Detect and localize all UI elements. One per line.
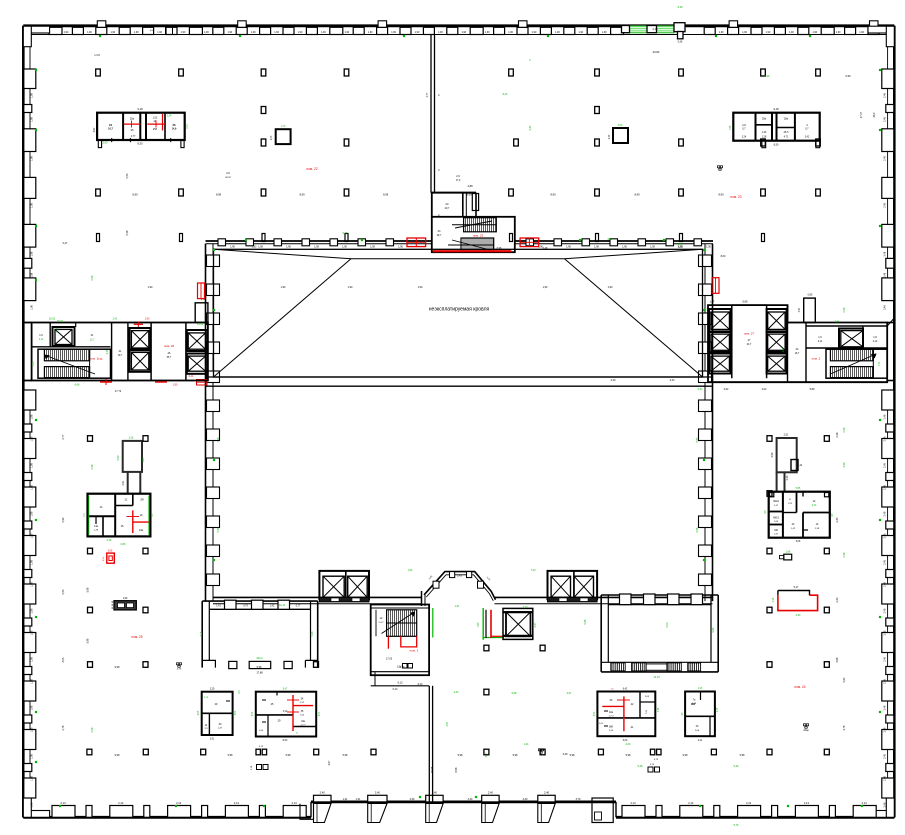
svg-text:7,33: 7,33 <box>98 358 103 361</box>
svg-text:2,5: 2,5 <box>238 690 241 694</box>
svg-text:6,89: 6,89 <box>743 301 748 304</box>
svg-text:пом. 24: пом. 24 <box>794 685 805 689</box>
svg-text:2,41: 2,41 <box>698 740 703 742</box>
svg-text:2,48: 2,48 <box>883 272 886 277</box>
svg-text:1,41: 1,41 <box>216 606 221 608</box>
svg-text:4,50: 4,50 <box>594 711 596 716</box>
svg-text:7,65: 7,65 <box>477 622 480 627</box>
svg-text:8,99: 8,99 <box>299 193 305 197</box>
svg-text:пом. 26: пом. 26 <box>164 344 175 348</box>
svg-text:3,33: 3,33 <box>670 379 675 382</box>
svg-text:2,11: 2,11 <box>818 341 823 343</box>
svg-text:5,98: 5,98 <box>115 666 120 669</box>
svg-text:1,70: 1,70 <box>281 125 286 128</box>
svg-text:2,40: 2,40 <box>320 791 326 795</box>
svg-text:1,90: 1,90 <box>859 31 864 34</box>
svg-text:2,92: 2,92 <box>62 517 65 522</box>
svg-text:5,98: 5,98 <box>683 754 688 757</box>
svg-text:6,89: 6,89 <box>121 543 126 546</box>
svg-text:2,48: 2,48 <box>883 414 886 419</box>
svg-text:2,48: 2,48 <box>883 679 886 684</box>
svg-text:5,86: 5,86 <box>696 527 699 532</box>
svg-text:36,0: 36,0 <box>873 112 876 117</box>
svg-text:1,98: 1,98 <box>30 436 33 441</box>
svg-text:7,20: 7,20 <box>531 569 536 572</box>
svg-text:2,11: 2,11 <box>39 339 44 341</box>
svg-text:5,53: 5,53 <box>126 173 129 178</box>
svg-text:3,79: 3,79 <box>576 798 581 801</box>
svg-text:1,90: 1,90 <box>391 31 396 34</box>
svg-text:1,98: 1,98 <box>30 272 33 277</box>
svg-text:2,48: 2,48 <box>883 485 886 490</box>
svg-text:5,98: 5,98 <box>87 587 90 592</box>
svg-text:1,90: 1,90 <box>742 31 747 34</box>
svg-text:2,53: 2,53 <box>62 589 65 594</box>
svg-text:2,40: 2,40 <box>375 791 381 795</box>
svg-text:1,90: 1,90 <box>157 31 162 34</box>
svg-text:2,48: 2,48 <box>883 156 886 161</box>
svg-text:7,20: 7,20 <box>523 606 528 609</box>
svg-text:3,40: 3,40 <box>468 798 473 801</box>
svg-text:0,27: 0,27 <box>63 242 68 245</box>
svg-text:2,41: 2,41 <box>113 318 118 321</box>
svg-text:9,18: 9,18 <box>773 107 779 111</box>
svg-text:19а: 19а <box>139 529 144 532</box>
svg-text:1,90: 1,90 <box>578 31 583 34</box>
svg-text:14,9: 14,9 <box>172 128 177 131</box>
svg-text:8,63: 8,63 <box>283 739 288 742</box>
svg-text:6,96: 6,96 <box>845 74 851 78</box>
svg-text:1,90: 1,90 <box>566 246 571 249</box>
svg-text:2,12: 2,12 <box>873 341 878 343</box>
svg-text:2,48: 2,48 <box>883 117 886 122</box>
svg-text:2,51: 2,51 <box>784 434 789 437</box>
svg-text:2×17: 2×17 <box>379 621 385 624</box>
svg-text:3,45: 3,45 <box>529 125 532 130</box>
svg-text:5,98: 5,98 <box>115 754 120 757</box>
svg-text:2,48: 2,48 <box>883 560 886 565</box>
svg-text:4,71: 4,71 <box>784 137 789 139</box>
svg-text:1,90: 1,90 <box>134 31 139 34</box>
svg-text:6,96: 6,96 <box>765 75 770 78</box>
svg-text:1,90: 1,90 <box>274 31 279 34</box>
svg-text:8,60: 8,60 <box>721 255 726 258</box>
svg-text:1,31: 1,31 <box>356 798 361 801</box>
svg-text:5,98: 5,98 <box>740 754 745 757</box>
svg-text:1,98: 1,98 <box>30 414 33 419</box>
svg-text:1,43: 1,43 <box>457 576 462 578</box>
svg-text:30,62: 30,62 <box>49 318 56 321</box>
svg-text:2,48: 2,48 <box>883 251 886 256</box>
svg-text:4,97: 4,97 <box>446 721 449 726</box>
svg-text:1,90: 1,90 <box>227 31 232 34</box>
svg-text:5,85: 5,85 <box>796 487 801 490</box>
svg-text:1,90: 1,90 <box>812 31 817 34</box>
svg-text:1,98: 1,98 <box>30 657 33 662</box>
svg-text:1,44: 1,44 <box>524 743 529 746</box>
svg-text:26: 26 <box>173 123 176 127</box>
svg-text:17,9: 17,9 <box>456 180 461 182</box>
svg-text:1,90: 1,90 <box>650 246 655 249</box>
svg-text:2,48: 2,48 <box>883 533 886 538</box>
svg-text:2,03: 2,03 <box>271 135 273 140</box>
svg-text:29а: 29а <box>762 118 767 121</box>
svg-text:38б: 38б <box>609 726 614 729</box>
svg-text:6,66: 6,66 <box>75 384 80 387</box>
svg-text:3,40: 3,40 <box>523 798 528 801</box>
svg-text:2,33: 2,33 <box>786 475 789 480</box>
svg-text:5,28: 5,28 <box>126 230 129 235</box>
svg-text:5,98: 5,98 <box>91 727 94 732</box>
svg-text:3,30: 3,30 <box>611 379 616 382</box>
svg-text:4,97: 4,97 <box>327 760 331 766</box>
svg-text:2,91: 2,91 <box>122 480 125 485</box>
svg-text:1,4 8: 1,4 8 <box>94 54 100 57</box>
svg-text:1,98: 1,98 <box>30 705 33 710</box>
svg-text:1,98: 1,98 <box>30 776 33 781</box>
svg-text:пом. 2: пом. 2 <box>812 357 821 361</box>
svg-text:5,48: 5,48 <box>638 765 643 768</box>
svg-text:1,90: 1,90 <box>145 318 150 321</box>
svg-text:0,28: 0,28 <box>107 540 112 542</box>
svg-text:2,48: 2,48 <box>883 754 886 759</box>
svg-text:1,98: 1,98 <box>30 582 33 587</box>
svg-text:5,47: 5,47 <box>794 586 799 589</box>
svg-text:2,48: 2,48 <box>883 463 886 468</box>
svg-text:1,98: 1,98 <box>30 608 33 613</box>
svg-text:4,97: 4,97 <box>567 692 572 695</box>
svg-text:4,88: 4,88 <box>467 184 473 188</box>
svg-text:0,38: 0,38 <box>678 42 683 44</box>
svg-text:5,60: 5,60 <box>623 740 628 742</box>
svg-text:2,13: 2,13 <box>118 801 124 805</box>
svg-text:3,98: 3,98 <box>843 462 846 467</box>
svg-text:1,90: 1,90 <box>344 31 349 34</box>
svg-text:8,99: 8,99 <box>718 193 724 197</box>
svg-text:1,6: 1,6 <box>39 334 43 337</box>
svg-text:1,77: 1,77 <box>426 92 429 97</box>
svg-text:18,7: 18,7 <box>795 353 800 355</box>
svg-text:2,24: 2,24 <box>167 116 172 118</box>
svg-text:неэксплатируемая кровля: неэксплатируемая кровля <box>429 307 490 313</box>
svg-text:8,99: 8,99 <box>216 193 222 197</box>
svg-text:1,98: 1,98 <box>30 202 33 207</box>
svg-text:12,03: 12,03 <box>653 676 660 679</box>
svg-text:1,90: 1,90 <box>706 246 711 249</box>
svg-text:19,7: 19,7 <box>118 355 123 357</box>
svg-text:1,90: 1,90 <box>461 31 466 34</box>
svg-text:6,42: 6,42 <box>623 689 628 691</box>
svg-text:4,52: 4,52 <box>724 388 729 391</box>
svg-text:3,42: 3,42 <box>805 137 810 139</box>
svg-text:1,47: 1,47 <box>710 301 715 304</box>
svg-text:3,24: 3,24 <box>742 137 747 139</box>
svg-text:1,99: 1,99 <box>123 598 128 600</box>
svg-text:1,7·4: 1,7·4 <box>609 716 615 718</box>
svg-text:17,88: 17,88 <box>256 672 263 675</box>
svg-text:8,99: 8,99 <box>466 193 472 197</box>
svg-text:7,18: 7,18 <box>200 631 203 636</box>
svg-text:8,30: 8,30 <box>774 144 779 147</box>
svg-text:28 б: 28 б <box>784 131 789 134</box>
svg-text:2,13: 2,13 <box>234 801 240 805</box>
svg-text:1,90: 1,90 <box>321 31 326 34</box>
svg-text:8,99: 8,99 <box>383 193 389 197</box>
svg-text:3,68: 3,68 <box>836 657 839 662</box>
svg-text:2,02: 2,02 <box>762 388 767 391</box>
svg-text:1,90: 1,90 <box>532 31 537 34</box>
svg-text:1,90: 1,90 <box>398 246 403 249</box>
svg-text:2,48: 2,48 <box>883 727 886 732</box>
svg-text:1,90: 1,90 <box>766 31 771 34</box>
svg-text:1,72: 1,72 <box>32 361 35 366</box>
svg-text:6,13: 6,13 <box>398 681 403 684</box>
svg-text:1,98: 1,98 <box>30 93 33 98</box>
svg-text:2,6: 2,6 <box>226 171 230 175</box>
svg-text:5,76: 5,76 <box>734 824 739 827</box>
svg-text:пом. 25: пом. 25 <box>131 635 142 639</box>
svg-text:2,13: 2,13 <box>292 801 298 805</box>
svg-text:23,82: 23,82 <box>653 50 660 54</box>
svg-text:2,48: 2,48 <box>883 657 886 662</box>
svg-text:4,77: 4,77 <box>131 135 136 138</box>
svg-text:6,43: 6,43 <box>343 232 348 235</box>
svg-text:30,62: 30,62 <box>57 320 64 323</box>
svg-text:2,48: 2,48 <box>883 93 886 98</box>
svg-text:34б: 34б <box>774 530 779 532</box>
svg-text:2,91: 2,91 <box>210 739 215 741</box>
svg-text:5,98: 5,98 <box>91 275 94 280</box>
svg-text:1,90: 1,90 <box>148 286 153 289</box>
svg-text:пом. 23: пом. 23 <box>730 195 741 199</box>
svg-text:2,13: 2,13 <box>746 801 752 805</box>
svg-text:13,7: 13,7 <box>90 340 95 342</box>
svg-text:4,51: 4,51 <box>319 711 321 716</box>
svg-text:2,48: 2,48 <box>883 705 886 710</box>
svg-text:5,98: 5,98 <box>87 638 90 643</box>
svg-text:14а: 14а <box>94 525 99 528</box>
svg-text:6,13: 6,13 <box>418 683 423 686</box>
svg-text:17,03: 17,03 <box>386 658 393 661</box>
svg-text:5,98: 5,98 <box>513 754 518 757</box>
svg-text:1,97: 1,97 <box>455 605 460 608</box>
svg-text:14.: 14. <box>153 120 157 123</box>
svg-text:0,44: 0,44 <box>189 375 194 378</box>
svg-text:2,1·7: 2,1·7 <box>301 725 307 727</box>
svg-text:2,13: 2,13 <box>60 801 66 805</box>
svg-text:3,26: 3,26 <box>129 437 134 440</box>
svg-text:1,98: 1,98 <box>30 727 33 732</box>
svg-text:2,43: 2,43 <box>812 505 817 507</box>
svg-text:6,47: 6,47 <box>283 689 288 691</box>
svg-text:28а: 28а <box>784 118 789 121</box>
svg-text:2,6: 2,6 <box>456 175 460 178</box>
svg-text:5,98: 5,98 <box>91 464 94 469</box>
svg-text:1,90: 1,90 <box>602 31 607 34</box>
svg-text:8,99: 8,99 <box>550 193 556 197</box>
svg-text:пбюр: пбюр <box>803 730 809 732</box>
svg-text:24: 24 <box>109 123 112 127</box>
svg-text:5,98: 5,98 <box>626 754 631 757</box>
svg-text:16,98: 16,98 <box>431 766 434 773</box>
svg-text:4,55: 4,55 <box>198 710 200 715</box>
svg-text:17,72: 17,72 <box>115 389 122 393</box>
svg-text:1,86: 1,86 <box>786 552 791 554</box>
svg-text:0,85: 0,85 <box>808 294 813 297</box>
svg-text:2,48: 2,48 <box>883 776 886 781</box>
svg-text:17,27: 17,27 <box>860 111 863 118</box>
svg-text:25б: 25б <box>153 128 158 131</box>
svg-text:2,48: 2,48 <box>883 436 886 441</box>
svg-text:3,98: 3,98 <box>773 597 775 602</box>
svg-text:9,82: 9,82 <box>142 457 145 462</box>
svg-text:5,46: 5,46 <box>734 765 739 768</box>
svg-text:1,41: 1,41 <box>343 798 348 801</box>
svg-text:5,43: 5,43 <box>217 527 220 532</box>
svg-text:9,65: 9,65 <box>696 437 699 442</box>
svg-text:пом. 27: пом. 27 <box>744 332 755 336</box>
svg-text:5,98: 5,98 <box>257 666 262 669</box>
svg-text:9,18: 9,18 <box>137 107 143 111</box>
svg-text:2,13: 2,13 <box>862 801 868 805</box>
svg-text:0,79: 0,79 <box>243 606 248 608</box>
svg-text:0,48: 0,48 <box>653 28 658 31</box>
svg-text:ЭКСП: ЭКСП <box>225 177 231 179</box>
svg-text:5,98: 5,98 <box>228 754 233 757</box>
svg-text:1,90: 1,90 <box>608 286 613 289</box>
svg-text:1,90: 1,90 <box>368 31 373 34</box>
svg-text:1,90: 1,90 <box>314 246 319 249</box>
svg-text:2,24: 2,24 <box>836 597 839 602</box>
svg-text:3,48: 3,48 <box>543 247 548 250</box>
svg-text:1,90: 1,90 <box>555 31 560 34</box>
svg-text:1,90: 1,90 <box>251 31 256 34</box>
svg-text:1,90: 1,90 <box>281 286 286 289</box>
svg-text:1,98: 1,98 <box>30 251 33 256</box>
svg-text:9,80: 9,80 <box>712 627 715 632</box>
svg-text:8,98: 8,98 <box>455 767 458 772</box>
svg-text:2,25: 2,25 <box>107 349 109 354</box>
svg-text:8,30: 8,30 <box>137 142 143 146</box>
svg-text:1,90: 1,90 <box>286 246 291 249</box>
svg-text:3,48: 3,48 <box>563 753 568 756</box>
svg-text:456/1: 456/1 <box>773 518 779 520</box>
svg-text:1,90: 1,90 <box>173 384 178 387</box>
svg-text:1,6: 1,6 <box>818 336 822 339</box>
svg-text:2,77: 2,77 <box>62 434 65 439</box>
svg-text:1,62: 1,62 <box>408 569 413 572</box>
svg-text:пом. 2: пом. 2 <box>90 357 99 361</box>
svg-text:3,53: 3,53 <box>678 246 683 249</box>
svg-text:2,48: 2,48 <box>883 608 886 613</box>
svg-text:2,48: 2,48 <box>883 630 886 635</box>
svg-text:1,90: 1,90 <box>719 31 724 34</box>
svg-text:5,43: 5,43 <box>311 631 314 636</box>
svg-text:2,40: 2,40 <box>488 791 494 795</box>
svg-text:1,42: 1,42 <box>270 606 275 608</box>
svg-text:1,90: 1,90 <box>87 31 92 34</box>
svg-text:1,98: 1,98 <box>30 305 33 310</box>
svg-text:пом. 22: пом. 22 <box>306 167 317 171</box>
svg-text:2,9 1: 2,9 1 <box>187 123 189 129</box>
svg-text:2,8: 2,8 <box>742 124 746 127</box>
svg-text:2,13: 2,13 <box>176 801 182 805</box>
svg-text:3,40: 3,40 <box>410 798 415 801</box>
svg-text:6,13: 6,13 <box>393 688 398 691</box>
svg-text:5,98: 5,98 <box>286 754 291 757</box>
svg-text:1,98: 1,98 <box>30 463 33 468</box>
svg-text:1,90: 1,90 <box>348 286 353 289</box>
svg-text:7,88: 7,88 <box>835 321 840 324</box>
svg-text:2,35: 2,35 <box>717 707 719 712</box>
svg-text:2,33: 2,33 <box>836 517 839 522</box>
svg-text:55,7: 55,7 <box>167 357 172 359</box>
svg-text:2,13: 2,13 <box>804 801 810 805</box>
svg-text:1,98: 1,98 <box>30 511 33 516</box>
svg-text:4,34: 4,34 <box>626 743 631 746</box>
svg-text:8,48: 8,48 <box>678 6 683 9</box>
svg-text:3,47: 3,47 <box>799 307 801 312</box>
svg-text:2,48: 2,48 <box>883 511 886 516</box>
svg-text:2,28: 2,28 <box>836 432 839 437</box>
svg-text:3,29: 3,29 <box>210 689 215 691</box>
svg-text:7,33: 7,33 <box>879 361 881 366</box>
svg-text:7,18: 7,18 <box>217 437 220 442</box>
svg-text:1,90: 1,90 <box>594 246 599 249</box>
svg-text:1,90: 1,90 <box>342 246 347 249</box>
svg-text:1,90: 1,90 <box>64 31 69 34</box>
svg-text:1,90: 1,90 <box>298 31 303 34</box>
svg-text:1,90: 1,90 <box>204 31 209 34</box>
svg-text:5,08: 5,08 <box>796 541 801 543</box>
svg-text:0,77: 0,77 <box>296 606 301 608</box>
svg-text:16,7: 16,7 <box>108 128 113 131</box>
svg-text:5,86: 5,86 <box>584 619 587 624</box>
svg-text:3,05: 3,05 <box>62 657 65 662</box>
svg-text:2,48: 2,48 <box>883 305 886 310</box>
svg-text:1,90: 1,90 <box>508 31 513 34</box>
svg-text:1,90: 1,90 <box>110 31 115 34</box>
svg-text:1,90: 1,90 <box>415 31 420 34</box>
svg-text:1,44: 1,44 <box>798 465 803 467</box>
svg-text:5,98: 5,98 <box>512 692 517 695</box>
svg-text:6,17: 6,17 <box>56 327 59 332</box>
svg-text:30,62: 30,62 <box>197 323 204 326</box>
svg-text:7,88: 7,88 <box>730 125 732 130</box>
svg-text:6,43: 6,43 <box>608 238 613 241</box>
svg-text:5,98: 5,98 <box>570 754 575 757</box>
svg-text:2,33: 2,33 <box>609 134 611 139</box>
svg-text:1,23: 1,23 <box>698 688 703 690</box>
svg-text:3,63: 3,63 <box>618 124 623 127</box>
svg-text:1,98: 1,98 <box>30 630 33 635</box>
svg-text:1,90: 1,90 <box>543 286 548 289</box>
svg-text:1,98: 1,98 <box>30 117 33 122</box>
svg-text:1,90: 1,90 <box>230 246 235 249</box>
svg-text:1,90: 1,90 <box>485 31 490 34</box>
svg-text:5,98: 5,98 <box>400 666 405 669</box>
svg-text:4,40: 4,40 <box>454 691 459 694</box>
svg-text:5,60: 5,60 <box>843 677 846 682</box>
svg-text:пом. 2: пом. 2 <box>410 649 419 653</box>
svg-text:6,98: 6,98 <box>497 247 502 250</box>
svg-text:2,97: 2,97 <box>534 622 537 627</box>
svg-text:1,46: 1,46 <box>762 132 767 134</box>
svg-text:5,99: 5,99 <box>771 452 774 457</box>
svg-text:30а/2: 30а/2 <box>773 501 779 503</box>
svg-text:1,98: 1,98 <box>30 754 33 759</box>
svg-text:1,90: 1,90 <box>438 31 443 34</box>
